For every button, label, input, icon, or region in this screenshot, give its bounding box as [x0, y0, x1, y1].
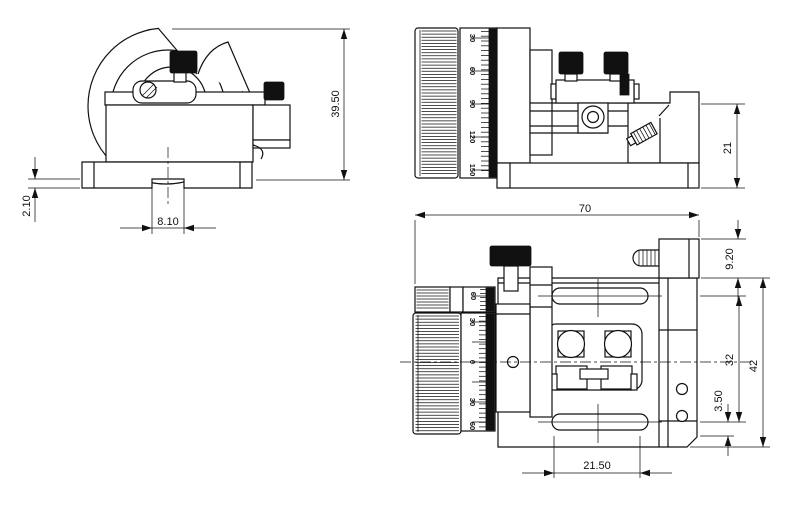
- thumbscrew-stem: [504, 266, 518, 291]
- mounting-hole: [677, 411, 688, 422]
- side-block: [253, 105, 290, 140]
- dim-total-height-label: 39.50: [330, 90, 342, 118]
- carriage-bar: [530, 267, 552, 417]
- carrier-plate: [497, 28, 530, 163]
- dim-stud-height-label: 9.20: [724, 248, 736, 269]
- drum-scale-label: 90: [468, 100, 477, 108]
- stud-block: [659, 239, 699, 278]
- lock-ring-knurling: [417, 290, 449, 308]
- drum-scale-label: 60: [468, 67, 477, 75]
- clamp-tab: [551, 84, 556, 99]
- right-bracket: [628, 92, 699, 163]
- sleeve-shade-band: [486, 288, 494, 311]
- clamp-post: [558, 331, 585, 358]
- clamp-thumbscrew-head: [559, 52, 583, 74]
- base-plate: [497, 163, 699, 188]
- mounting-hole: [677, 384, 688, 395]
- dim-block-height-label: 21: [722, 142, 734, 154]
- clamp-thumbscrew-head: [604, 52, 628, 74]
- dim-hole-offset-label: 3.50: [713, 390, 725, 411]
- drum-scale-label: 120: [468, 131, 477, 144]
- drum-shade-band: [489, 29, 497, 177]
- dim-total-width-label: 70: [579, 203, 591, 215]
- drum-scale-label: 30: [468, 398, 477, 406]
- clamp-tab: [634, 84, 639, 99]
- stage-drawing: 2.10 8.10 39.50 30 60 90 120 150: [0, 0, 800, 514]
- main-body: [106, 105, 253, 162]
- clamp-bar: [580, 369, 608, 379]
- clamp-post: [605, 331, 632, 358]
- sleeve-gap: [450, 287, 463, 312]
- knob-knurling: [422, 31, 457, 174]
- dim-slot-centers-label: 32: [724, 354, 736, 366]
- micrometer-knob: [415, 28, 458, 178]
- dim-slot-length-label: 21.50: [583, 460, 611, 472]
- dim-total-depth-label: 42: [748, 360, 760, 372]
- drum-scale-label: 60: [469, 292, 478, 300]
- drum-shade-band: [486, 314, 494, 430]
- side-thumbscrew-head: [264, 82, 284, 100]
- thumbscrew-stem: [565, 74, 577, 81]
- drum-scale-label: 30: [468, 34, 477, 42]
- dim-slot-width-label: 8.10: [157, 216, 178, 228]
- thumbscrew-head: [490, 246, 531, 266]
- drum-scale-label: 30: [468, 318, 477, 326]
- thumbscrew-shadow: [620, 74, 629, 95]
- dim-step-depth-label: 2.10: [21, 195, 33, 216]
- center-bolt-inner: [588, 112, 599, 123]
- drum-scale-label: 150: [468, 164, 477, 177]
- drum-scale-label: 60: [468, 422, 477, 430]
- thumbscrew-head: [170, 51, 197, 73]
- clamp-side-tab: [631, 374, 637, 390]
- technical-drawing-page: 2.10 8.10 39.50 30 60 90 120 150: [0, 0, 800, 514]
